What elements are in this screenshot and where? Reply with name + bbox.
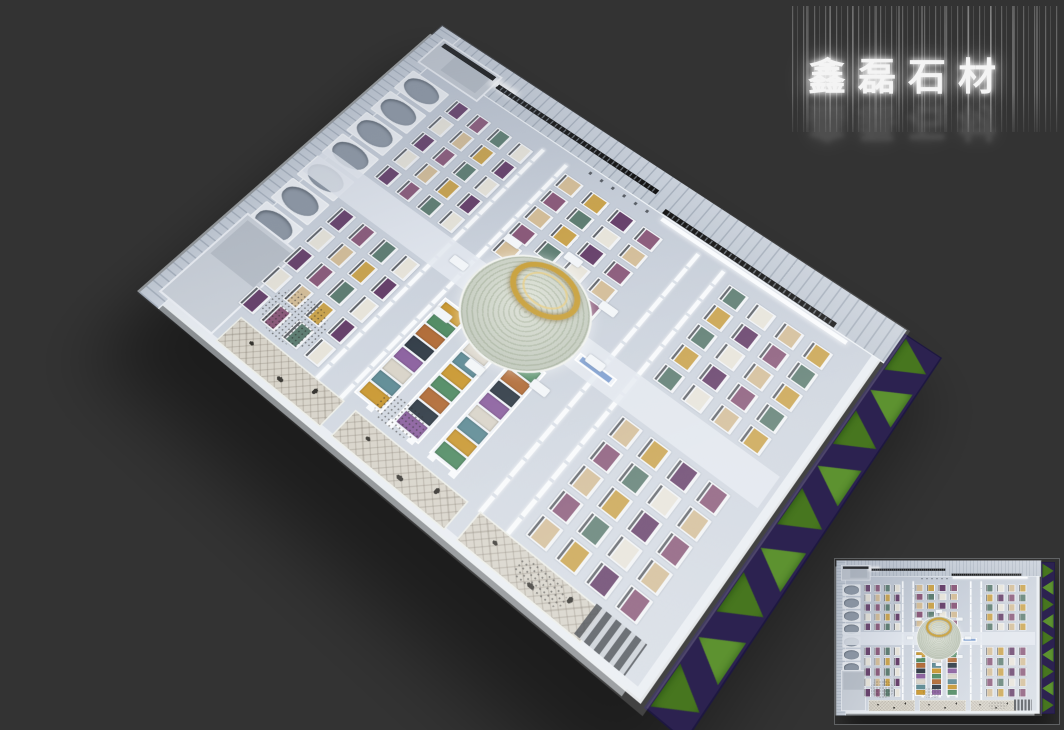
lawn-triangle [1042, 647, 1054, 662]
display-stand [432, 306, 453, 324]
lawn-triangle [1042, 614, 1054, 629]
lawn-triangle [859, 374, 912, 428]
display-stand [529, 378, 551, 397]
display-stand [563, 251, 584, 268]
display-stand [936, 610, 943, 613]
decor-scatter [989, 702, 1007, 710]
lawn-triangle [651, 664, 715, 730]
showroom-plan [839, 563, 1039, 713]
atrium-stands [150, 33, 898, 700]
display-stand [965, 636, 972, 639]
lawn-triangle [1042, 681, 1054, 696]
plan-minimap[interactable] [834, 558, 1060, 725]
lawn-triangle [777, 488, 834, 548]
display-stand [956, 618, 963, 621]
gold-ring-sculpture [926, 618, 952, 638]
render-canvas: 鑫磊石材 鑫磊石材 [0, 0, 1064, 730]
lawn-triangle [1042, 631, 1054, 646]
display-stand [915, 655, 922, 658]
lawn-triangle [833, 410, 888, 466]
lawn-triangle [1042, 580, 1054, 595]
decor-scatter [871, 681, 894, 699]
decor-scatter [923, 688, 941, 699]
showroom-plan [150, 33, 898, 700]
display-stand [936, 663, 943, 666]
lawn-triangle [1042, 664, 1054, 679]
display-stand [907, 636, 914, 639]
display-stand [956, 655, 963, 658]
lawn-triangle [717, 572, 777, 637]
lawn-triangle [1042, 698, 1054, 713]
display-stand [915, 618, 922, 621]
lawn-triangle [747, 529, 806, 592]
display-stand [584, 354, 606, 373]
landscape-strip [1041, 562, 1055, 714]
display-stand [449, 255, 470, 272]
display-stand [464, 358, 486, 377]
lawn-triangle [684, 617, 746, 685]
display-stand [502, 233, 523, 250]
lawn-triangle [1042, 597, 1054, 612]
lawn-triangle [806, 448, 862, 506]
display-stand [598, 300, 619, 318]
lawn-triangle [1042, 564, 1054, 579]
